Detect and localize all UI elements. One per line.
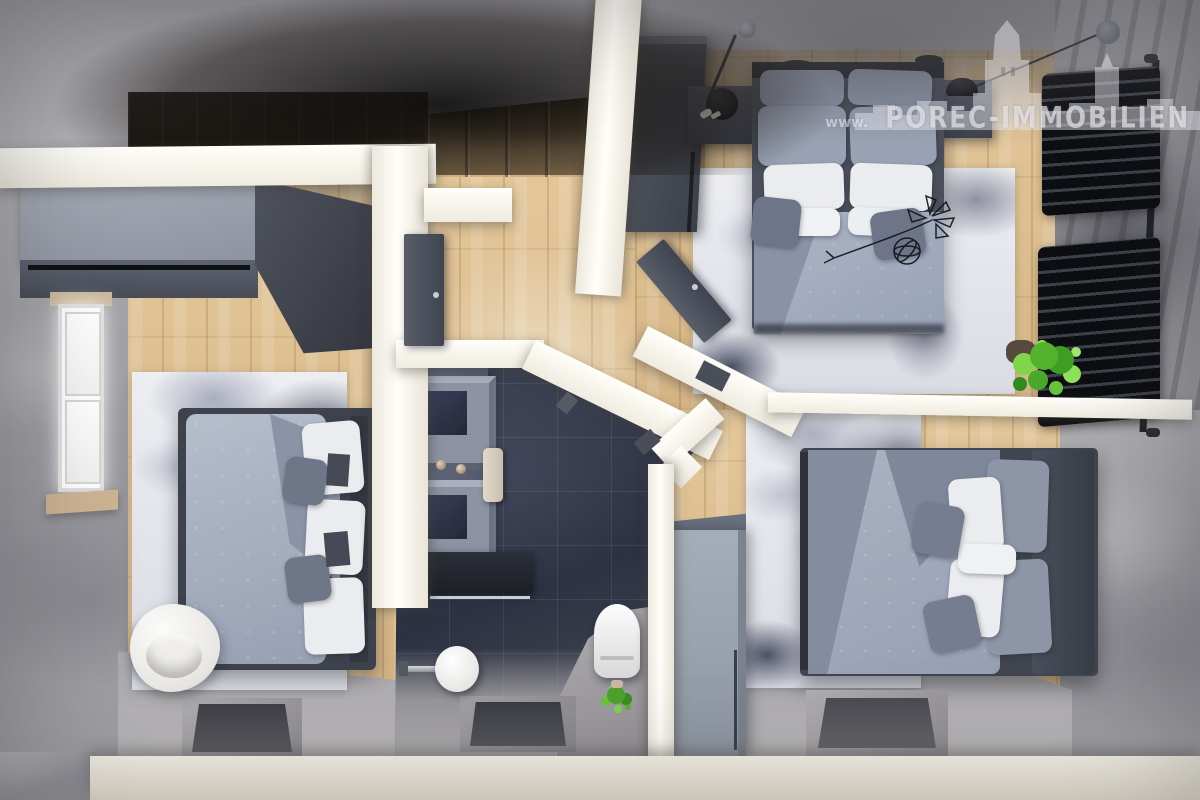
stairwell-void xyxy=(128,92,428,150)
wall-bathroom-east xyxy=(648,464,674,764)
bed-left-bracket-2 xyxy=(324,531,351,567)
bed-tr-cushion-1 xyxy=(760,70,844,106)
bed-tr-pillow-gray-1 xyxy=(758,106,846,166)
radiator-knob-bottom xyxy=(1146,428,1160,437)
duvet-flower-sketch xyxy=(812,194,972,289)
window-west-glass-top xyxy=(65,312,101,396)
bathroom-bench xyxy=(425,552,533,592)
window-west-frame xyxy=(58,304,104,492)
skylight-bottom-right xyxy=(806,690,948,756)
wardrobe-top-right-seam xyxy=(687,152,695,232)
armchair-left-seat xyxy=(146,634,202,678)
south-wall-band xyxy=(90,756,1200,800)
door-left-bedroom xyxy=(404,234,444,346)
bathroom-plant xyxy=(607,686,625,704)
shower-recess xyxy=(460,696,576,752)
vanity-faucet-1 xyxy=(436,460,446,470)
skylight-left xyxy=(182,698,302,758)
wall-stair-header xyxy=(424,188,512,222)
window-west xyxy=(50,292,112,514)
bed-left-pillow-accent-1 xyxy=(281,455,329,506)
apartment-floorplan-render: www. POREC-IMMOBILIEN .hr xyxy=(0,0,1200,800)
toilet xyxy=(594,604,640,678)
bed-top-right xyxy=(752,62,947,334)
door-tr-handle xyxy=(691,283,699,291)
bed-br-pillow-accent-2 xyxy=(921,593,983,655)
wardrobe-bottom-right xyxy=(664,530,746,756)
bed-left-bracket-1 xyxy=(326,453,350,486)
wall-top-left xyxy=(0,144,436,189)
wardrobe-left-handle xyxy=(28,265,250,270)
lamp-left-shade xyxy=(706,88,738,120)
plant-top-right xyxy=(1030,342,1058,370)
bathroom-towel xyxy=(483,448,503,502)
wardrobe-top-right-lip xyxy=(633,36,707,44)
bathroom-plant-pot xyxy=(611,680,623,688)
shower-recess-opening xyxy=(470,702,566,746)
bed-bottom-right xyxy=(800,448,1098,676)
bed-br-pillow-strip xyxy=(957,543,1016,575)
lamp-right-cap xyxy=(1096,20,1120,44)
bed-tr-pillow-gray-2 xyxy=(849,105,937,168)
bathroom-bench-rail xyxy=(430,596,530,599)
vanity-sink-1-basin xyxy=(427,391,467,435)
toilet-paper-mount xyxy=(399,661,408,676)
bed-br-pillow-accent-1 xyxy=(910,500,966,560)
vanity-faucet-2 xyxy=(456,464,466,474)
wardrobe-br-side xyxy=(738,530,746,756)
door-left-handle xyxy=(433,292,439,298)
lamp-left-cap xyxy=(738,20,756,38)
wall-left-bedroom-east xyxy=(372,146,428,608)
window-west-sill xyxy=(46,489,118,514)
skylight-left-opening xyxy=(192,704,292,752)
lamp-right-shade xyxy=(946,78,978,96)
window-west-glass-bottom xyxy=(65,400,101,484)
radiator-top xyxy=(1042,66,1160,216)
skylight-br-opening xyxy=(818,698,936,748)
wardrobe-br-handle xyxy=(734,650,737,750)
bed-tr-cushion-2 xyxy=(847,69,932,108)
toilet-lid-seam xyxy=(600,656,634,660)
vanity-sink-2-basin xyxy=(427,495,467,539)
bed-tr-foot-shadow xyxy=(754,324,944,334)
radiator-knob-top xyxy=(1144,54,1158,63)
south-wall-corner-left xyxy=(0,752,96,800)
toilet-paper-roll xyxy=(435,646,479,692)
bed-tr-pillow-accent-1 xyxy=(750,196,803,249)
